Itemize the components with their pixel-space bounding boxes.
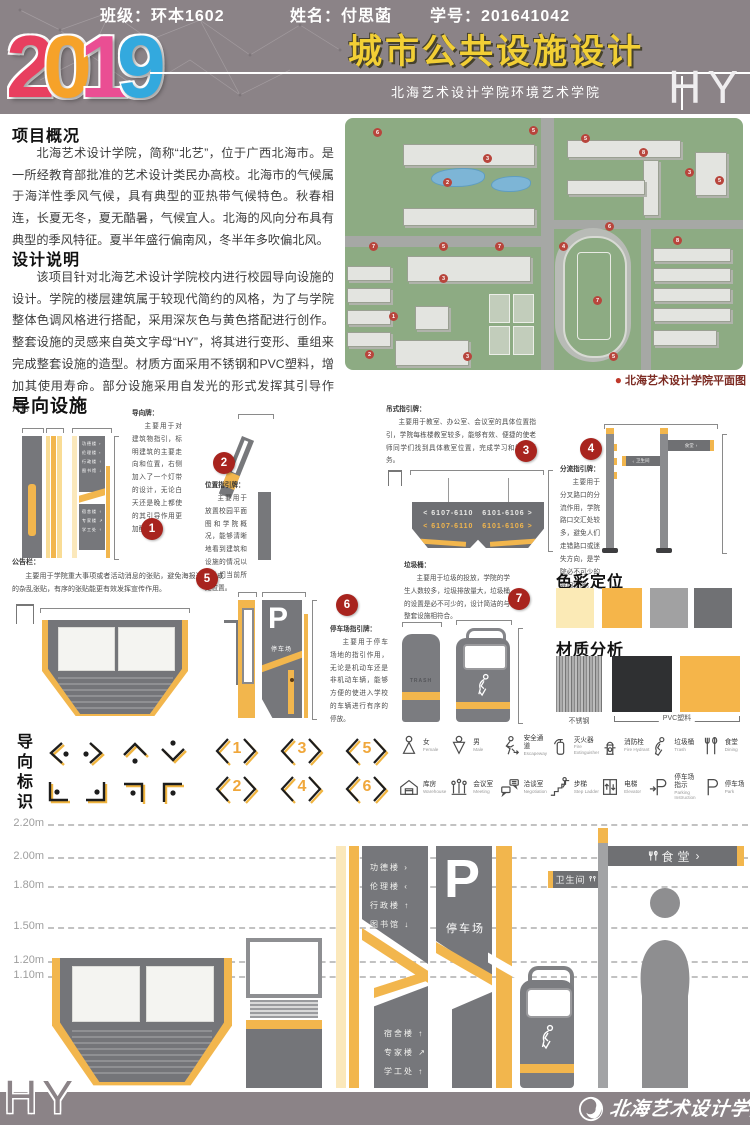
meeting-icon [448,775,470,799]
dimension-line [72,428,112,433]
item1-text: 导向牌：主要用于对建筑物指引，标明建筑的主要走向和位置，右侧加入了一个灯带的设计… [132,408,182,536]
number-sign-4: 4 [277,774,327,804]
parking-sign-side [238,600,255,718]
stand-glyph [16,604,34,624]
dimension-line [518,628,523,724]
pictogram-extinguisher: 灭火器Fire Extinguisher [549,734,599,758]
height-label: 1.50m [2,920,44,932]
map-building [395,340,469,366]
dimension-line [410,470,544,475]
pictogram-row-2: 库房Warehouse 会议室Meeting 洽谈室Negotiation 步梯… [398,774,750,801]
number-sign-6: 6 [342,774,392,804]
building-label: 行政楼 ↑ [370,896,428,915]
park-icon [700,775,722,799]
color-swatch-gray [650,588,688,628]
hanging-sign: < 6107-6110 6101-6106 > < 6107-6110 6101… [412,502,544,548]
map-pond [431,168,485,187]
pictogram-row-1: 女Female 男Male 安全通道Escapeway 灭火器Fire Exti… [398,734,750,758]
bin-screen [526,988,572,1018]
dimension-line [40,608,190,613]
height-label: 2.20m [2,817,44,829]
item1-number: 1 [141,518,163,540]
stand-glyph [388,470,402,486]
map-building [403,144,535,166]
trash-label: TRASH [402,678,440,684]
pole-large [598,828,608,1088]
map-building [347,310,391,325]
parking-label: 停车场 [271,644,292,653]
map-marker: 5 [529,126,538,135]
pictogram-elevator: 电梯Elevator [599,774,649,801]
littering-icon [472,672,494,698]
map-marker: 7 [369,242,378,251]
corner-arrow-glyph [80,776,112,806]
dining-icon [700,734,722,758]
bulletin-panel [118,627,175,671]
map-marker: 5 [581,134,590,143]
material-pvc-dark [612,656,672,712]
item4-number: 4 [580,438,602,460]
map-marker: 1 [389,312,398,321]
map-road [554,220,743,229]
building-label: 学工处 ↑ [384,1062,428,1081]
bulletin-board [42,620,188,718]
dimension-line [456,620,512,625]
utensils-icon [648,850,659,862]
map-marker: 3 [685,168,694,177]
pvc-label: PVC塑料 [659,713,695,723]
canteen-arm-small: 食堂› [668,440,714,451]
map-marker: 2 [443,178,452,187]
sign-pole [660,434,668,550]
dimension-line [312,600,317,720]
school-logo-swirl [578,1096,604,1122]
pictogram-trash: 垃圾桶Trash [649,734,699,758]
item6-number: 6 [336,594,358,616]
dimension-line [722,434,727,554]
map-building [347,332,391,347]
pictogram-male: 男Male [448,734,498,758]
canteen-arm: 食堂› [608,846,744,866]
building-label: 伦理楼 ‹ [370,877,428,896]
poster-root: 2019 城市公共设施设计 北海艺术设计学院环境艺术学院 HY 项目概况 北海艺… [0,0,750,1125]
map-building [653,288,731,302]
map-building [653,308,731,322]
map-marker: 8 [673,236,682,245]
pictogram-hydrant: 消防栓Fire Hydrant [599,734,649,758]
corner-arrow-glyph [156,776,188,806]
toilet-arm: ‹卫生间 [548,871,598,888]
female-icon [398,734,420,758]
map-road [641,229,651,370]
building-label: 行政楼 ↑ [82,457,105,466]
dimension-line [114,436,119,560]
hanger-rod [508,478,509,502]
map-marker: 4 [559,242,568,251]
bulletin-panel [146,966,214,1022]
building-label: 图书馆 ↓ [370,915,428,934]
map-court [489,326,510,355]
dimension-line [238,414,274,419]
map-marker: 8 [639,148,648,157]
corner-arrow-glyph [118,776,150,806]
height-label: 1.10m [2,969,44,981]
map-court [489,294,510,323]
map-building [653,268,731,282]
dimension-line [22,428,44,433]
guide-sign-bar [46,436,62,558]
parking-sign-small: P 停车场 [262,600,308,718]
board-side-view [224,620,239,685]
pictogram-meeting: 会议室Meeting [448,774,498,801]
map-caption: ● 北海艺术设计学院平面图 [560,372,746,388]
map-building [403,208,535,226]
map-marker: 7 [593,296,602,305]
guide-sign-bar-labeled: 功德楼 › 伦理楼 ‹ 行政楼 ↑ 图书馆 ↓ 宿舍楼 ↑ 专家楼 ↗ 学工处 … [72,436,110,558]
school-name-script: 北海艺术设计学院 [608,1094,750,1121]
pictogram-park: 停车场Park [700,774,750,801]
number-sign-1: 1 [212,736,262,766]
bulletin-board-large [52,958,232,1088]
number-sign-5: 5 [342,736,392,766]
map-pond [491,176,531,192]
building-label: 图书馆 ↓ [82,466,105,475]
map-marker: 5 [715,176,724,185]
arrow-left-glyph [40,737,74,767]
guide-sign-bar [22,436,42,558]
footer-hy-logo: HY [4,1070,78,1124]
arrow-right-glyph [78,737,112,767]
dimension-line [262,592,306,597]
arrow-down-glyph [156,737,190,767]
item6-text: 停车场指引牌：主要用于停车场地的指引作用，无论是机动车还是非机动车辆，能够方便的… [330,624,388,727]
fire-hydrant-icon [599,734,621,758]
building-label: 功德楼 › [82,439,105,448]
poster-subtitle: 北海艺术设计学院环境艺术学院 [318,82,674,101]
map-court [513,326,534,355]
parking-letter: P [444,848,480,910]
map-marker: 3 [483,154,492,163]
bulletin-panel [58,627,115,671]
pvc-bracket: PVC塑料 [614,716,740,722]
map-building [415,306,449,330]
map-marker: 6 [605,222,614,231]
parking-label: 停车场 [446,920,485,936]
signage-heading: 导向标识 [10,733,34,813]
campus-map: 6 3 5 5 8 3 5 2 7 5 7 4 6 8 3 1 2 3 7 5 [345,118,743,370]
facilities-heading: 导向设施 [12,392,88,418]
map-marker: 5 [609,352,618,361]
height-label: 1.20m [2,954,44,966]
student-id-label: 学号：201641042 [430,0,570,33]
height-label: 2.00m [2,850,44,862]
negotiation-icon [499,775,521,799]
map-building [347,266,391,281]
parking-letter: P [268,602,288,636]
building-label: 专家楼 ↗ [82,516,105,525]
number-sign-3: 3 [277,736,327,766]
map-marker: 5 [439,242,448,251]
item2-number: 2 [213,452,235,474]
elevator-icon [599,775,621,799]
building-label: 宿舍楼 ↑ [384,1024,428,1043]
sign-pole [606,434,614,550]
steel-label: 不锈钢 [556,716,602,726]
littering-icon [535,1022,559,1052]
pictogram-stepladder: 步梯Step Ladder [549,774,599,801]
hy-logo: HY [668,60,744,114]
direction-sign-large: 功德楼 › 伦理楼 ‹ 行政楼 ↑ 图书馆 ↓ 宿舍楼 ↑ 专家楼 ↗ 学工处 … [336,846,428,1088]
dimension-line [402,622,442,627]
name-label: 姓名：付思菡 [290,0,392,33]
map-marker: 3 [463,352,472,361]
fire-extinguisher-icon [549,734,571,758]
escapeway-icon [499,734,521,758]
map-marker: 3 [439,274,448,283]
trash-bin-large [520,966,574,1088]
item3-number: 3 [515,440,537,462]
parking-instruction-icon [649,775,671,799]
map-building [567,180,645,195]
trash-bin-side [456,628,510,722]
item5-number: 5 [196,568,218,590]
warehouse-icon [398,775,420,799]
pictogram-warehouse: 库房Warehouse [398,774,448,801]
building-label: 专家楼 ↗ [384,1043,428,1062]
map-marker: 7 [495,242,504,251]
dimension-line [238,592,257,597]
pictogram-parking-instruction: 停车场指示Parking Instruction [649,774,699,801]
arrow-up-glyph [118,737,152,767]
trash-icon [649,734,671,758]
map-court [513,294,534,323]
pictogram-escapeway: 安全通道Escapeway [499,734,549,758]
wc-icon [588,875,597,884]
bin-screen [463,644,507,670]
pictogram-female: 女Female [398,734,448,758]
map-building [347,288,391,303]
human-silhouette [622,886,708,1088]
building-label: 伦理楼 ‹ [82,448,105,457]
class-label: 班级：环本1602 [100,0,225,33]
toilet-arm-small: ‹卫生间 [622,456,660,466]
color-swatch-yellow [602,588,642,628]
parking-sign-large: P 停车场 [436,846,518,1088]
pictogram-negotiation: 洽谈室Negotiation [499,774,549,801]
item7-text: 垃圾桶：主要用于垃圾的投放，学院的学生人数较多，垃圾排放量大，垃圾桶的设置是必不… [404,560,510,624]
kiosk-large [246,936,322,1088]
overview-body: 北海艺术设计学院，简称“北艺”，位于广西北海市。是一所经教育部批准的艺术设计类民… [12,143,334,252]
map-building [643,160,659,216]
pole-base [656,548,672,553]
map-building [653,330,717,346]
school-seal [290,678,294,682]
item3-text: 吊式指引牌：主要用于教室、办公室、会议室的具体位置指引，学院每栋楼教室较多，能够… [386,404,536,468]
corner-arrow-glyph [42,776,74,806]
map-marker: 2 [365,350,374,359]
map-marker: 6 [373,128,382,137]
height-line [48,824,748,826]
item5-text: 公告栏：主要用于学院重大事项或者活动消息的张贴，避免海报过多造成的杂乱张贴，有序… [12,556,224,597]
trash-bin-front: TRASH [402,634,440,722]
building-label: 功德楼 › [370,858,428,877]
dimension-line [548,470,553,552]
bulletin-panel [72,966,140,1022]
hanger-rod [448,478,449,502]
material-steel [556,656,602,712]
position-sign-pole [258,492,271,560]
color-swatch-dark-gray [694,588,732,628]
color-swatch-light-yellow [556,588,594,628]
number-sign-2: 2 [212,774,262,804]
material-pvc-yellow [680,656,740,712]
map-road [541,118,554,370]
building-label: 学工处 ↑ [82,525,105,534]
map-building [407,256,531,282]
building-label: 宿舍楼 ↑ [82,507,105,516]
item7-number: 7 [508,588,530,610]
map-building [695,152,727,196]
dimension-line [46,428,64,433]
male-icon [448,734,470,758]
kiosk-screen [246,938,322,998]
map-building [653,248,731,262]
pole-base [602,548,618,553]
height-label: 1.80m [2,879,44,891]
pictogram-dining: 食堂Dining [700,734,750,758]
step-ladder-icon [549,775,571,799]
legend-dot: ● [615,373,622,387]
